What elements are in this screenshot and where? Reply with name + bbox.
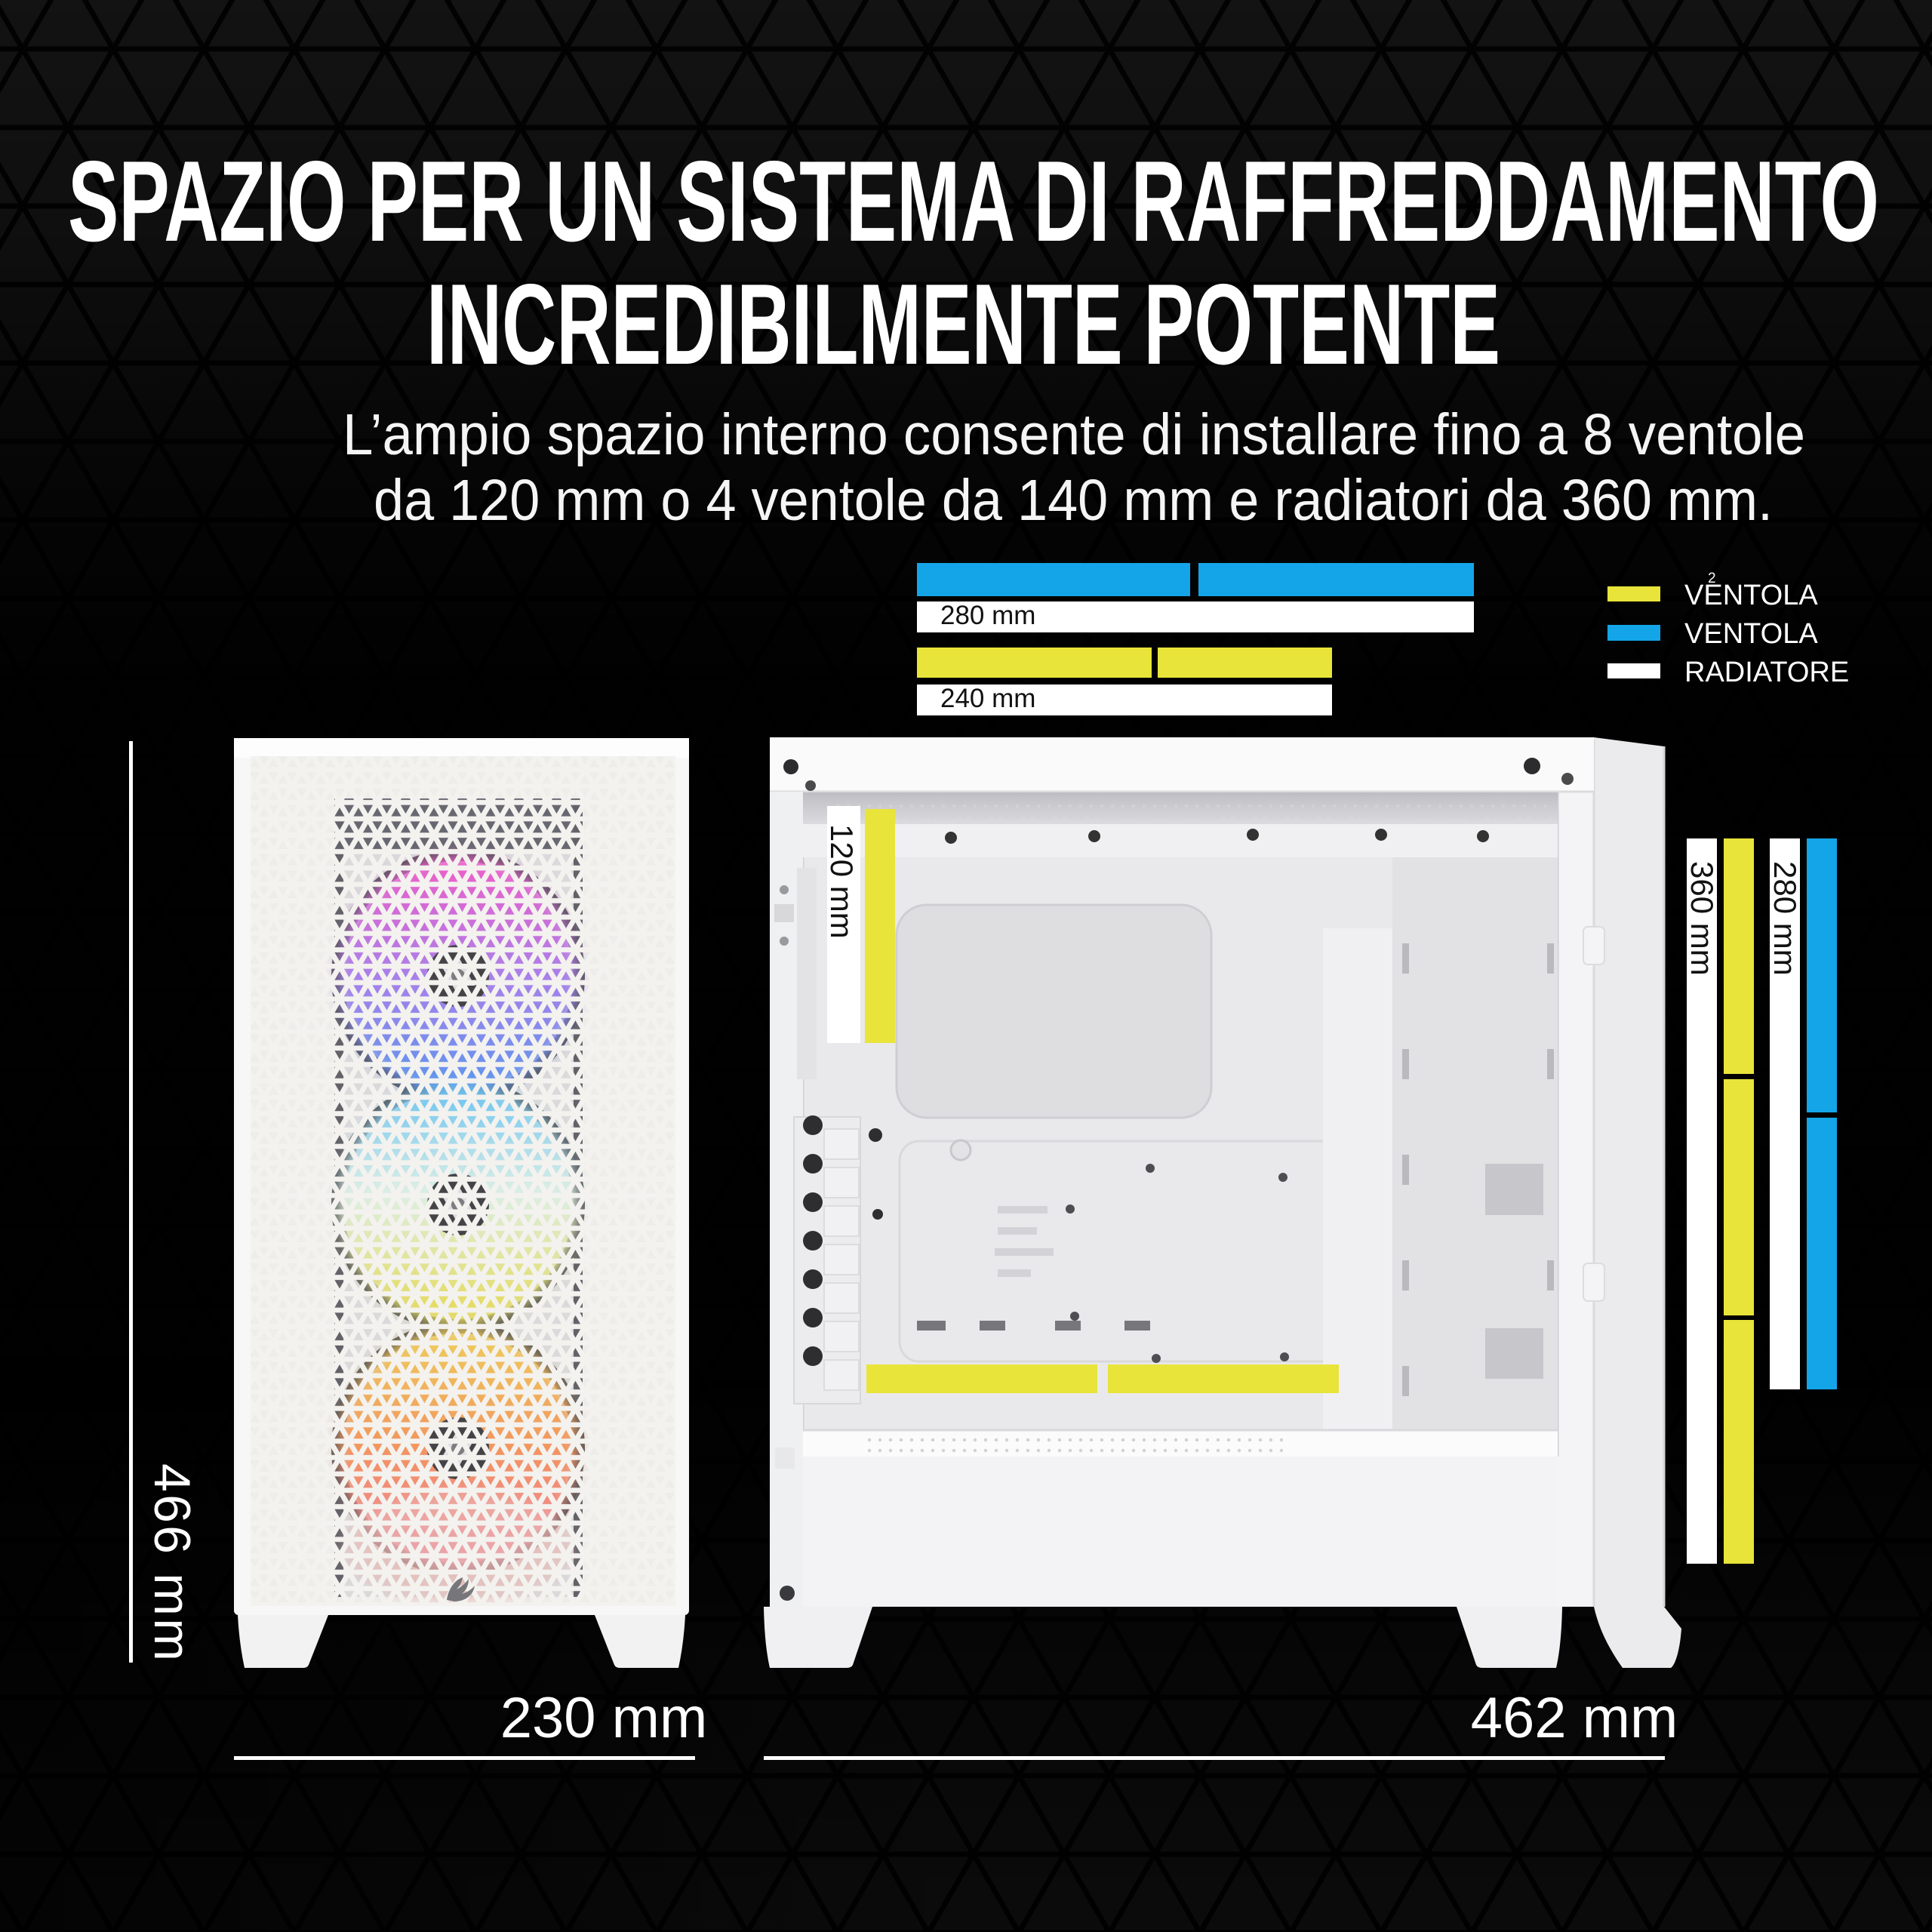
svg-text:da 120 mm o 4 ventole da 140 m: da 120 mm o 4 ventole da 140 mm e radiat… <box>374 468 1773 533</box>
svg-text:230 mm: 230 mm <box>500 1686 708 1750</box>
svg-text:VENTOLA: VENTOLA <box>1684 580 1818 611</box>
svg-text:RADIATORE: RADIATORE <box>1684 657 1849 688</box>
svg-text:280 mm: 280 mm <box>1767 861 1803 976</box>
svg-text:INCREDIBILMENTE POTENTE: INCREDIBILMENTE POTENTE <box>426 260 1500 389</box>
svg-text:2: 2 <box>1708 571 1716 586</box>
svg-text:240 mm: 240 mm <box>940 684 1035 713</box>
svg-text:462 mm: 462 mm <box>1471 1686 1678 1750</box>
svg-text:360 mm: 360 mm <box>1684 861 1720 976</box>
svg-text:120 mm: 120 mm <box>824 824 860 939</box>
svg-text:SPAZIO PER UN SISTEMA DI RAFFR: SPAZIO PER UN SISTEMA DI RAFFREDDAMENTO <box>68 137 1879 266</box>
svg-text:L’ampio spazio interno consent: L’ampio spazio interno consente di insta… <box>343 402 1805 467</box>
svg-text:VENTOLA: VENTOLA <box>1684 618 1818 650</box>
svg-text:280 mm: 280 mm <box>940 601 1035 630</box>
